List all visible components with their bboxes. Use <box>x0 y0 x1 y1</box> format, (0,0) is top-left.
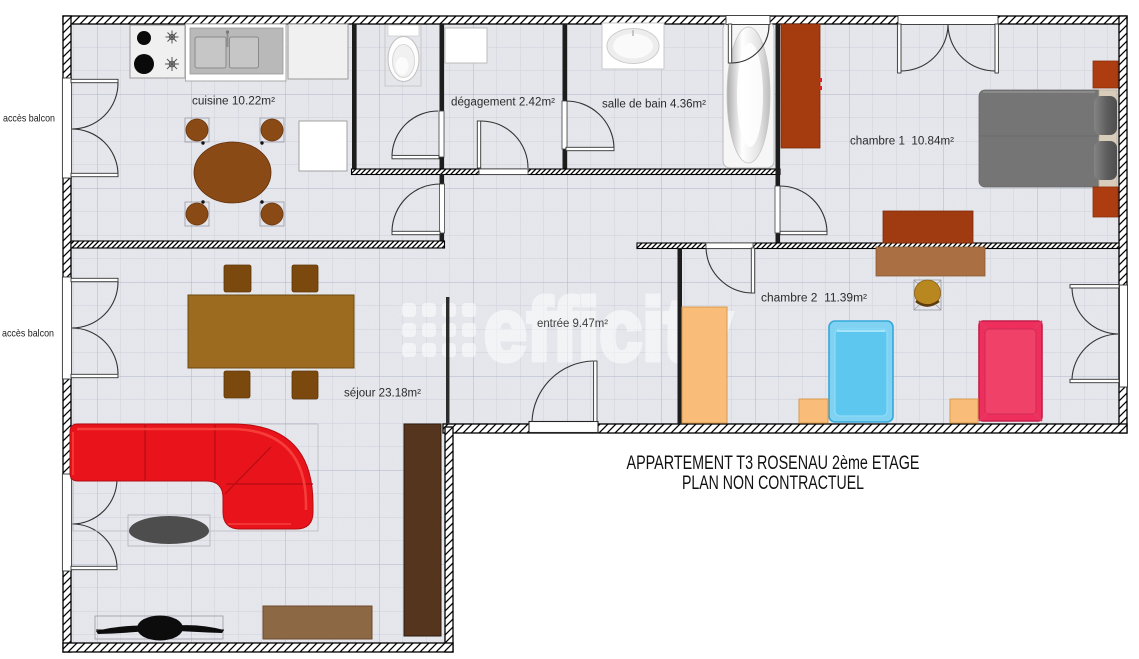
svg-text:PLAN NON CONTRACTUEL: PLAN NON CONTRACTUEL <box>682 472 864 494</box>
svg-text:cuisine 10.22m²: cuisine 10.22m² <box>192 96 275 108</box>
svg-text:accès balcon: accès balcon <box>3 113 55 125</box>
svg-text:accès balcon: accès balcon <box>2 328 54 340</box>
svg-text:salle de bain 4.36m²: salle de bain 4.36m² <box>602 99 706 111</box>
svg-text:APPARTEMENT T3 ROSENAU 2ème ET: APPARTEMENT T3 ROSENAU 2ème ETAGE <box>627 452 920 474</box>
svg-text:chambre 1 10.84m²: chambre 1 10.84m² <box>850 136 954 148</box>
svg-text:chambre 2 11.39m²: chambre 2 11.39m² <box>761 293 867 305</box>
svg-text:dégagement 2.42m²: dégagement 2.42m² <box>451 97 555 109</box>
svg-text:séjour 23.18m²: séjour 23.18m² <box>344 388 421 400</box>
svg-text:entrée 9.47m²: entrée 9.47m² <box>537 318 608 330</box>
